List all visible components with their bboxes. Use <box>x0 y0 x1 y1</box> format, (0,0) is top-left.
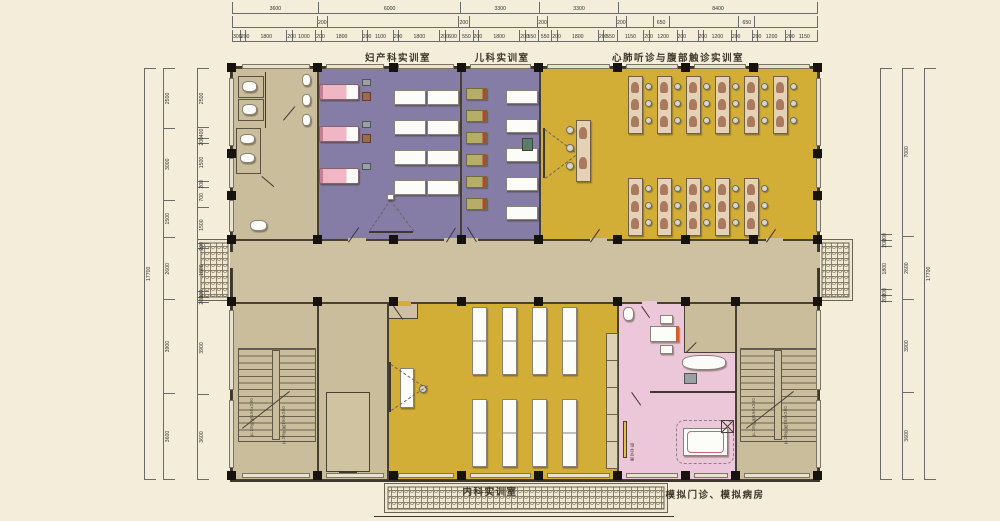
hospital-bed <box>319 168 359 184</box>
column <box>813 297 822 306</box>
urinal <box>302 114 311 126</box>
chair <box>645 117 652 124</box>
chair <box>703 185 710 192</box>
dim-left-major: 250030001500260039003600 <box>163 68 175 480</box>
column <box>313 471 322 480</box>
window <box>229 200 234 232</box>
chair <box>660 345 673 354</box>
dim-segment: 1500 <box>197 208 209 244</box>
torso-model <box>631 201 639 212</box>
column <box>749 63 758 72</box>
dim-label: 200 <box>552 35 556 40</box>
dim-label: 550 <box>526 35 538 40</box>
chair <box>732 202 739 209</box>
dim-segment <box>880 68 892 235</box>
window <box>547 473 610 478</box>
dim-segment: 300 <box>232 30 241 42</box>
dim-segment: 200 <box>459 16 469 28</box>
dim-label: 200 <box>394 35 398 40</box>
window <box>547 64 610 69</box>
chair <box>703 117 710 124</box>
dim-segment: 1800 <box>880 247 892 291</box>
column <box>313 63 322 72</box>
work-table <box>427 180 459 195</box>
column <box>613 235 622 244</box>
dim-top-windows: 3002001800200100020018002001100200180020… <box>232 30 818 42</box>
torso-model <box>747 116 755 127</box>
dim-segment: 1800 <box>479 30 520 42</box>
door-gap <box>815 252 820 268</box>
dim-label: 17700 <box>926 69 932 479</box>
column <box>731 297 740 306</box>
dim-label: 3900 <box>199 303 205 394</box>
dim-label: 600 <box>446 35 459 40</box>
dim-label: 650 <box>654 21 669 26</box>
projection-screen <box>369 231 413 233</box>
column <box>681 63 690 72</box>
dim-label: 650 <box>739 21 754 26</box>
dim-label: 200 <box>617 21 626 26</box>
torso-model <box>718 116 726 127</box>
toilet <box>242 104 257 115</box>
student-desk <box>472 307 487 375</box>
stair-rail <box>774 350 782 440</box>
column <box>813 63 822 72</box>
torso-model <box>631 82 639 93</box>
dim-segment: 550 <box>460 30 473 42</box>
dim-label: 550 <box>460 35 472 40</box>
column <box>813 471 822 480</box>
infant-crib <box>466 88 487 100</box>
chair <box>645 185 652 192</box>
chair <box>660 315 673 324</box>
dim-label: 3600 <box>233 7 318 12</box>
window <box>694 64 746 69</box>
dim-label: 200 <box>287 35 291 40</box>
projection-screen <box>543 128 545 178</box>
equipment-cart <box>522 138 533 151</box>
torso-model <box>631 116 639 127</box>
dim-label: 200 <box>199 139 205 144</box>
torso-model <box>747 184 755 195</box>
dim-segment: 1150 <box>791 30 818 42</box>
column <box>227 297 236 306</box>
dim-label: 200 <box>363 35 367 40</box>
dim-label: 200 <box>644 35 648 40</box>
dim-segment: 1100 <box>368 30 394 42</box>
stair-annotation: 下28步宽150x280 <box>783 364 789 444</box>
column <box>389 471 398 480</box>
dim-label: 200 <box>882 241 888 246</box>
dim-segment: 550 <box>604 30 617 42</box>
infant-crib <box>466 154 487 166</box>
dim-segment: 17700 <box>924 68 936 480</box>
ward-bed-rail <box>687 431 724 453</box>
dim-label: 200 <box>786 35 790 40</box>
dim-segment <box>737 30 753 42</box>
dim-segment: 6000 <box>319 2 461 14</box>
torso-model <box>631 99 639 110</box>
dim-segment: 1800 <box>322 30 363 42</box>
dim-segment: 1800 <box>399 30 440 42</box>
curtain-end-box <box>721 420 734 433</box>
dim-left-detail: 2500400200150020070015002001800200200390… <box>197 68 209 480</box>
partition-wall <box>650 391 736 393</box>
column <box>813 149 822 158</box>
dim-segment: 3900 <box>197 303 209 395</box>
dim-label: 200 <box>474 35 478 40</box>
chair <box>790 100 797 107</box>
column <box>681 297 690 306</box>
patient-monitor <box>362 79 371 86</box>
dim-segment: 17700 <box>144 68 156 480</box>
toilet <box>242 81 257 92</box>
dim-label: 3300 <box>540 7 618 12</box>
dim-label: 3900 <box>904 300 910 393</box>
entry-step <box>374 516 674 517</box>
dim-label: 550 <box>604 35 616 40</box>
dim-label: 200 <box>241 35 245 40</box>
chair <box>790 117 797 124</box>
dim-segment: 650 <box>654 16 670 28</box>
window <box>470 64 531 69</box>
window <box>744 473 810 478</box>
dim-label: 200 <box>199 244 205 249</box>
column <box>813 191 822 200</box>
dim-segment: 3000 <box>163 129 175 201</box>
dim-segment: 2500 <box>163 68 175 129</box>
column <box>457 63 466 72</box>
dim-top-mid: 200200200200650650 <box>232 16 818 28</box>
column <box>227 235 236 244</box>
dim-label: 1500 <box>199 208 205 243</box>
chair <box>761 219 768 226</box>
dim-label: 200 <box>459 21 468 26</box>
dim-label: 1800 <box>246 35 286 40</box>
dim-label: 1200 <box>704 35 731 40</box>
window <box>816 400 821 468</box>
student-desk <box>532 307 547 375</box>
window <box>816 78 821 146</box>
chair <box>645 83 652 90</box>
dim-segment: 1000 <box>293 30 316 42</box>
torso-model <box>747 99 755 110</box>
projector <box>387 194 394 200</box>
chair <box>674 100 681 107</box>
work-table <box>394 90 426 105</box>
column <box>731 471 740 480</box>
consult-desk <box>650 326 679 342</box>
dim-label: 300 <box>233 35 240 40</box>
stool <box>566 162 574 170</box>
dim-segment: 1800 <box>558 30 599 42</box>
medical-device <box>684 373 697 384</box>
dim-segment: 1800 <box>246 30 287 42</box>
dim-label: 200 <box>199 298 205 303</box>
dim-label: 3900 <box>165 300 171 392</box>
window <box>626 473 678 478</box>
chair <box>761 202 768 209</box>
torso-model <box>776 116 784 127</box>
dim-segment: 3300 <box>540 2 619 14</box>
column <box>227 471 236 480</box>
dim-label: 1200 <box>650 35 677 40</box>
dim-label: 550 <box>539 35 551 40</box>
chair <box>703 219 710 226</box>
dim-label: 1800 <box>399 35 439 40</box>
dim-segment: 200 <box>617 16 627 28</box>
sink <box>240 134 255 144</box>
chair <box>674 219 681 226</box>
student-desk <box>562 307 577 375</box>
window <box>694 473 728 478</box>
torso-model <box>689 184 697 195</box>
door-gap <box>230 252 235 268</box>
teaching-whiteboard <box>623 421 627 458</box>
dim-segment: 7000 <box>902 68 914 237</box>
work-table <box>506 119 538 133</box>
student-desk <box>562 399 577 467</box>
dim-segment: 1500 <box>163 201 175 238</box>
work-table <box>506 177 538 191</box>
dim-label: 200 <box>599 35 603 40</box>
column <box>227 191 236 200</box>
column <box>457 235 466 244</box>
dim-segment: 3600 <box>197 395 209 480</box>
torso-model <box>776 82 784 93</box>
dim-segment: 1150 <box>618 30 645 42</box>
pedestal-sink <box>250 220 267 231</box>
chair <box>761 117 768 124</box>
student-desk <box>532 399 547 467</box>
hospital-bed <box>319 84 359 100</box>
window <box>229 400 234 468</box>
window <box>229 78 234 146</box>
stair-annotation: 下28步宽150x280 <box>751 356 757 436</box>
work-table <box>394 150 426 165</box>
projection-screen <box>389 362 391 412</box>
bedside-table <box>362 92 371 101</box>
torso-model <box>718 82 726 93</box>
infant-crib <box>466 198 487 210</box>
window <box>470 473 531 478</box>
window <box>398 473 454 478</box>
sink <box>623 307 634 321</box>
dim-label: 7000 <box>904 69 910 236</box>
stair-annotation: 下28步宽150x280 <box>249 356 255 436</box>
urinal <box>302 74 311 86</box>
chair <box>732 100 739 107</box>
urinal <box>302 94 311 106</box>
column <box>313 297 322 306</box>
chair <box>703 202 710 209</box>
room-label-internal: 内科实训室 <box>438 484 542 498</box>
dim-segment: 2500 <box>197 68 209 128</box>
dim-label: 1100 <box>368 35 393 40</box>
dim-label: 3600 <box>165 394 171 479</box>
chair <box>645 202 652 209</box>
window <box>816 200 821 232</box>
window <box>626 64 678 69</box>
room-label-peds: 儿科实训室 <box>460 50 544 64</box>
infant-crib <box>466 110 487 122</box>
patient-monitor <box>362 121 371 128</box>
torso-model <box>776 99 784 110</box>
dim-right-major: 7000260039003600 <box>902 68 914 480</box>
dim-right-total: 17700 <box>924 68 936 480</box>
dim-segment: 700 <box>197 188 209 208</box>
torso-model <box>718 184 726 195</box>
dim-label: 1800 <box>882 247 888 290</box>
room-label-obgyn: 妇产科实训室 <box>348 50 448 64</box>
dim-label: 3600 <box>904 393 910 479</box>
torso-model <box>689 218 697 229</box>
dim-label: 1000 <box>293 35 315 40</box>
dim-segment <box>670 16 740 28</box>
room-label-cardio: 心肺听诊与腹部触诊实训室 <box>608 50 748 64</box>
dim-segment: 2600 <box>163 238 175 301</box>
torso-model <box>718 201 726 212</box>
student-desk <box>472 399 487 467</box>
chair <box>674 202 681 209</box>
dim-segment: 200 <box>318 16 328 28</box>
chair <box>732 219 739 226</box>
dim-label: 8400 <box>619 7 817 12</box>
dim-segment: 1200 <box>758 30 786 42</box>
dim-segment <box>683 30 699 42</box>
washroom-partition <box>265 72 266 128</box>
dim-segment: 200 <box>538 16 548 28</box>
column <box>389 297 398 306</box>
window <box>229 158 234 188</box>
column <box>227 149 236 158</box>
stool <box>566 126 574 134</box>
torso-model <box>747 218 755 229</box>
dim-label: 3600 <box>199 395 205 479</box>
elevator-shaft <box>326 392 370 472</box>
bedside-table <box>362 134 371 143</box>
student-desk <box>502 307 517 375</box>
dim-segment <box>470 16 538 28</box>
dim-label: 200 <box>882 296 888 301</box>
dim-segment: 650 <box>739 16 755 28</box>
torso-model <box>631 218 639 229</box>
work-table <box>394 120 426 135</box>
exam-bed <box>682 355 726 370</box>
dim-segment: 1200 <box>650 30 678 42</box>
window <box>242 473 310 478</box>
column <box>534 235 543 244</box>
chair <box>674 185 681 192</box>
door-gap <box>642 301 657 306</box>
student-desk <box>502 399 517 467</box>
column <box>457 297 466 306</box>
dim-segment: 1500 <box>197 144 209 182</box>
window <box>816 158 821 188</box>
infant-crib <box>466 132 487 144</box>
dim-segment: 8400 <box>619 2 818 14</box>
floor-plan: 妇产科实训室儿科实训室心肺听诊与腹部触诊实训室内科实训室模拟门诊、模拟病房教学平… <box>0 0 1000 521</box>
window <box>758 64 810 69</box>
dim-segment: 3900 <box>163 300 175 393</box>
window <box>242 64 310 69</box>
torso-model <box>579 127 587 139</box>
dim-label: 200 <box>440 35 444 40</box>
dim-segment <box>755 16 818 28</box>
dim-label: 2600 <box>165 238 171 300</box>
work-table <box>506 90 538 104</box>
dim-segment: 550 <box>539 30 552 42</box>
stair-annotation: 下28步宽150x280 <box>281 364 287 444</box>
dim-label: 1800 <box>199 249 205 291</box>
window <box>229 310 234 390</box>
torso-model <box>660 218 668 229</box>
dim-label: 17700 <box>146 69 152 479</box>
dim-label: 1200 <box>758 35 785 40</box>
torso-model <box>660 82 668 93</box>
column <box>534 471 543 480</box>
window <box>326 473 384 478</box>
torso-model <box>660 116 668 127</box>
dim-label: 200 <box>753 35 757 40</box>
chair <box>761 185 768 192</box>
dim-label: 1800 <box>479 35 519 40</box>
cabinet-column <box>606 333 618 469</box>
torso-model <box>689 116 697 127</box>
dim-label: 200 <box>318 21 327 26</box>
dim-label: 3300 <box>461 7 539 12</box>
column <box>457 471 466 480</box>
chair <box>732 185 739 192</box>
work-table <box>427 90 459 105</box>
torso-model <box>660 184 668 195</box>
chair <box>645 100 652 107</box>
torso-model <box>660 99 668 110</box>
dim-segment <box>627 16 654 28</box>
window <box>398 64 454 69</box>
dim-label: 2500 <box>199 69 205 127</box>
column <box>389 235 398 244</box>
chair <box>732 83 739 90</box>
dim-segment: 3900 <box>902 300 914 394</box>
dim-label: 200 <box>520 35 524 40</box>
dim-label: 1500 <box>199 144 205 181</box>
dim-label: 2500 <box>165 69 171 128</box>
column <box>813 235 822 244</box>
dim-segment: 3600 <box>163 394 175 480</box>
chair <box>761 83 768 90</box>
column <box>534 297 543 306</box>
column <box>313 235 322 244</box>
chair <box>645 219 652 226</box>
torso-model <box>631 184 639 195</box>
dim-segment: 3600 <box>902 393 914 480</box>
chair <box>703 100 710 107</box>
whiteboard-label: 教学平板 <box>629 423 635 461</box>
dim-label: 1500 <box>165 201 171 237</box>
torso-model <box>747 201 755 212</box>
window <box>816 310 821 390</box>
sink <box>240 153 255 163</box>
dim-label: 3000 <box>165 129 171 200</box>
room-label-simclinic: 模拟门诊、模拟病房 <box>645 487 785 501</box>
dim-segment <box>232 16 318 28</box>
dim-label: 200 <box>678 35 682 40</box>
dim-segment: 2600 <box>902 237 914 300</box>
dim-segment: 1200 <box>704 30 732 42</box>
work-table <box>394 180 426 195</box>
dim-segment <box>328 16 459 28</box>
